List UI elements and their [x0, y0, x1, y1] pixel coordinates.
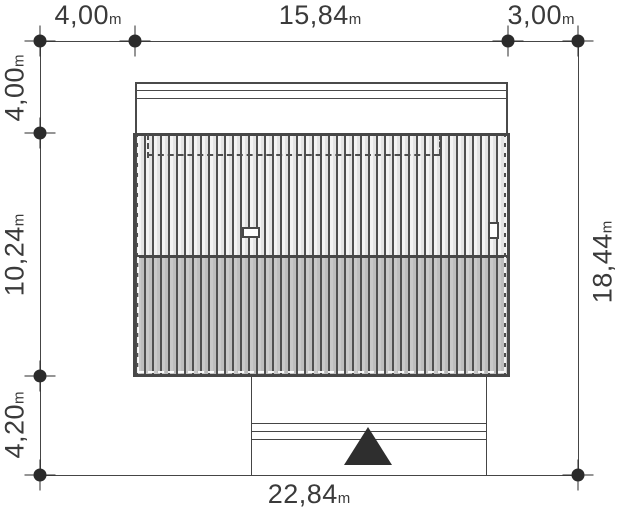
- dimension-value: 3,00: [507, 0, 562, 30]
- site-plan: 4,00m 15,84m 3,00m 4,00m 10,24m 4,20m 18…: [0, 0, 620, 516]
- roof-plan: [133, 133, 510, 377]
- dimension-value: 4,20: [0, 404, 30, 459]
- dimension-line-right: [578, 41, 579, 475]
- porch-wall-right: [486, 377, 487, 475]
- dimension-value: 4,00: [0, 67, 30, 122]
- wall-outline-dashed-step-right: [439, 134, 441, 155]
- porch-wall-left: [251, 377, 252, 475]
- chimney-right: [488, 222, 499, 239]
- eaves-line: [137, 90, 506, 91]
- dimension-label-bottom: 22,84m: [268, 481, 351, 508]
- dimension-value: 10,24: [0, 226, 30, 296]
- eaves-line: [137, 98, 506, 99]
- dimension-dot: [502, 35, 515, 48]
- wall-outline-dashed-left: [137, 137, 139, 373]
- dimension-label-left-middle: 10,24m: [2, 214, 29, 297]
- dimension-unit: m: [109, 11, 122, 28]
- wall-outline-dashed-right: [504, 137, 506, 373]
- dimension-dot: [34, 35, 47, 48]
- wall-outline-dashed-bottom: [138, 371, 504, 373]
- dimension-value: 18,44: [588, 233, 618, 303]
- dimension-label-top-right: 3,00m: [507, 2, 574, 29]
- wall-outline-dashed-north: [148, 154, 440, 156]
- dimension-value: 4,00: [54, 0, 109, 30]
- dimension-line-bottom: [40, 475, 578, 476]
- dimension-dot: [572, 469, 585, 482]
- roof-lower-slope: [136, 258, 507, 374]
- dimension-unit: m: [11, 391, 28, 404]
- dimension-value: 15,84: [279, 0, 349, 30]
- dimension-dot: [34, 127, 47, 140]
- dimension-label-top-left: 4,00m: [54, 2, 121, 29]
- dimension-label-left-bottom: 4,20m: [2, 391, 29, 458]
- dimension-value: 22,84: [268, 479, 338, 509]
- north-eaves-structure: [135, 82, 508, 133]
- entrance-triangle-marker: [344, 427, 392, 465]
- dimension-unit: m: [599, 221, 616, 234]
- dimension-unit: m: [562, 11, 575, 28]
- porch-step-line: [251, 423, 487, 424]
- dimension-dot: [34, 370, 47, 383]
- dimension-unit: m: [11, 214, 28, 227]
- dimension-unit: m: [338, 490, 351, 507]
- dimension-line-left: [40, 41, 41, 475]
- dimension-unit: m: [11, 54, 28, 67]
- dimension-dot: [129, 35, 142, 48]
- dimension-dot: [34, 469, 47, 482]
- chimney-left: [242, 227, 260, 238]
- dimension-label-right: 18,44m: [590, 221, 617, 304]
- dimension-label-left-top: 4,00m: [2, 54, 29, 121]
- dimension-dot: [572, 35, 585, 48]
- roof-ridge-line: [136, 255, 507, 258]
- dimension-unit: m: [349, 11, 362, 28]
- dimension-label-top-center: 15,84m: [279, 2, 362, 29]
